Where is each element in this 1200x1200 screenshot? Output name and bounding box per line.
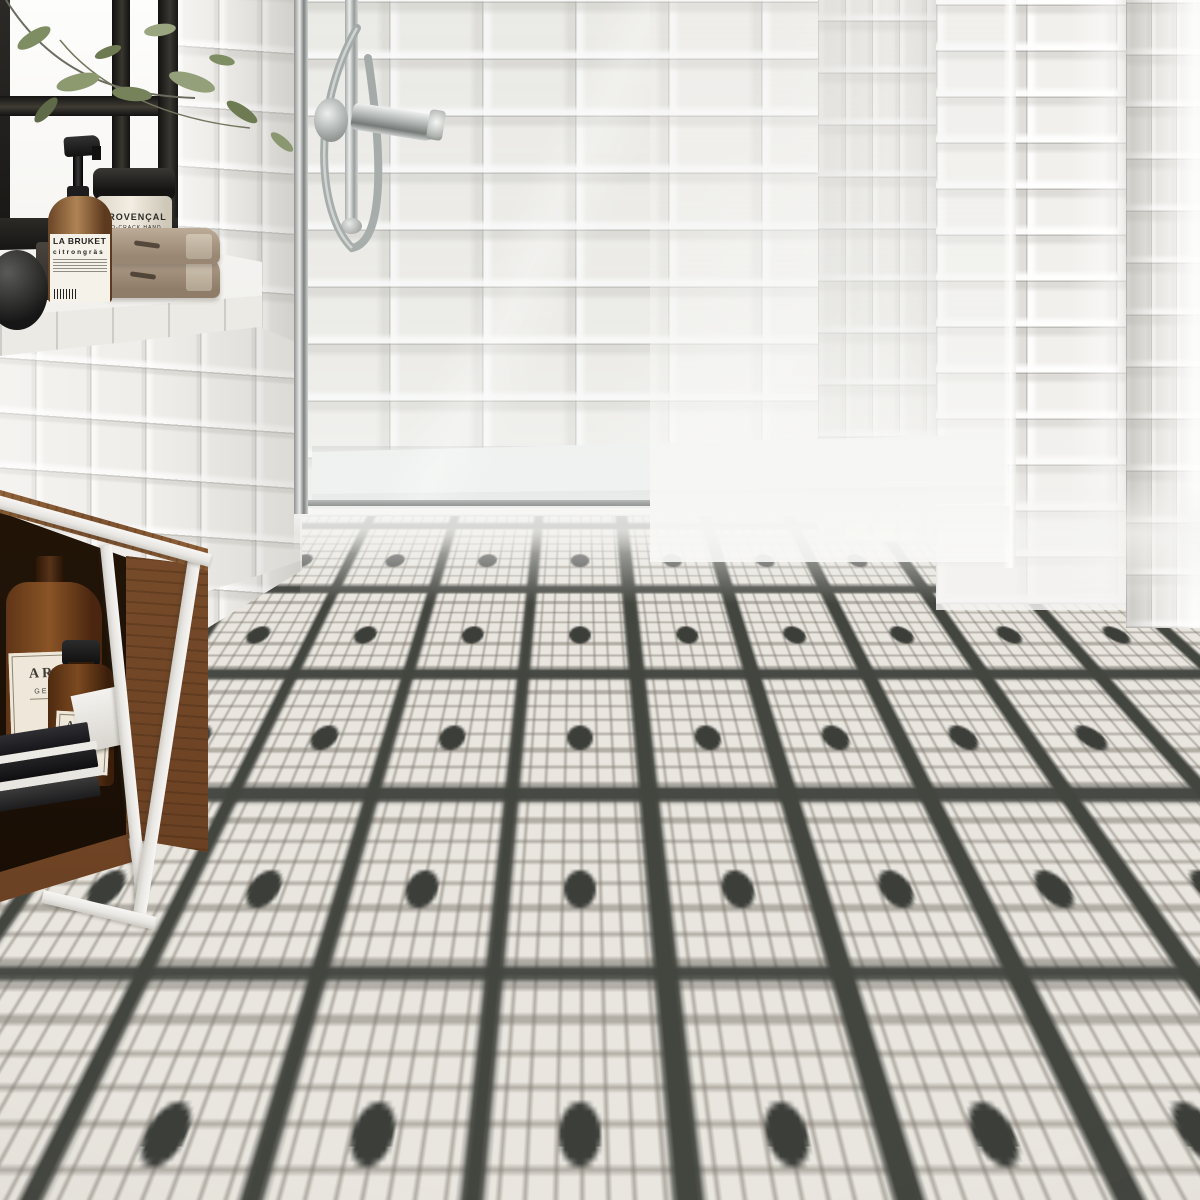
vignette (0, 0, 1200, 1200)
bathroom-scene: ARG GEL D ~ ARG HUILE DE PROVENÇAL NO-CR… (0, 0, 1200, 1200)
